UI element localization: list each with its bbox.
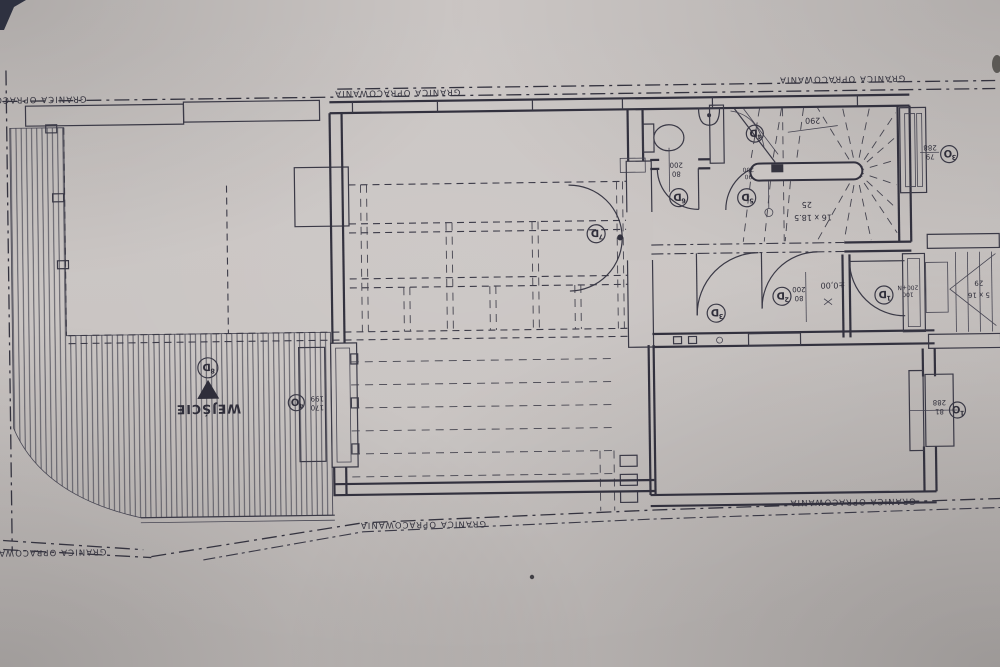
floor-plan-photo: GRANICA OPRACOWANIA GRANICA OPRACOWANIA … xyxy=(0,0,1000,667)
stair-going-dim: 25 xyxy=(802,200,812,209)
door-label-d2: D xyxy=(777,289,785,300)
door-label-d6-sub: 6 xyxy=(681,197,686,205)
svg-text:80: 80 xyxy=(794,294,803,302)
door-label-d7-sub: 7 xyxy=(599,233,604,241)
door-label-d8: D xyxy=(202,361,210,372)
deck-hatch xyxy=(10,124,333,519)
window-label-o4: O xyxy=(291,396,300,407)
window-label-o3-sub: 3 xyxy=(952,153,957,161)
overhead-structure-dashed xyxy=(348,181,628,332)
bottom-right-room: O 1 81 288 xyxy=(649,348,967,506)
toilet xyxy=(643,124,684,153)
window-o1-height: 288 xyxy=(933,398,946,406)
window-o1-width: 81 xyxy=(935,407,944,415)
masonry-pier xyxy=(294,167,349,227)
terrace-top-wall-2 xyxy=(183,100,319,122)
plan-sheet: GRANICA OPRACOWANIA GRANICA OPRACOWANIA … xyxy=(0,57,1000,563)
corner-mark xyxy=(0,0,26,30)
party-wall: D 7 xyxy=(568,109,655,348)
terrace-top-wall xyxy=(25,104,183,126)
boundary-label-top-left: GRANICA OPRACOWANIA xyxy=(0,93,87,105)
window-o4-height: 199 xyxy=(311,394,324,402)
terrace xyxy=(9,100,352,524)
door-label-d4: D xyxy=(749,127,757,138)
door-label-d6: D xyxy=(673,191,681,202)
door-label-d1: D xyxy=(879,288,887,299)
floor-plan-drawing: GRANICA OPRACOWANIA GRANICA OPRACOWANIA … xyxy=(0,0,1000,667)
door-label-d4-sub: 4 xyxy=(757,133,762,141)
svg-text:200: 200 xyxy=(792,285,805,293)
wc-wall-stub xyxy=(709,105,724,163)
boundary-label-bottom-right: GRANICA OPRACOWANIA xyxy=(789,496,915,508)
hall: D 3 D 2 80 200 ±0,00 xyxy=(651,241,934,347)
window-o4-width: 170 xyxy=(311,403,324,411)
svg-text:200: 200 xyxy=(742,166,754,173)
shaft-blocks xyxy=(620,455,638,502)
boundary-label-top-right: GRANICA OPRACOWANIA xyxy=(779,73,905,85)
stair-handrail xyxy=(750,162,862,180)
svg-text:80: 80 xyxy=(672,170,681,178)
window-o3: O 3 79 288 xyxy=(900,107,959,193)
door-label-d7: D xyxy=(591,227,599,238)
boundary-label-bottom-center: GRANICA OPRACOWANIA xyxy=(360,518,486,530)
door-label-d8-sub: 8 xyxy=(210,367,215,375)
door-label-d2-sub: 2 xyxy=(784,295,789,303)
window-label-o3: O xyxy=(944,147,953,158)
entrance-label: WEJŚCIE xyxy=(176,401,242,417)
svg-text:200: 200 xyxy=(670,161,683,169)
door-label-d1-sub: 1 xyxy=(886,294,891,302)
boundary-label-top-center: GRANICA OPRACOWANIA xyxy=(334,87,460,99)
exterior-stair-treads: 5 x 16 xyxy=(967,291,990,299)
door-label-d5-sub: 5 xyxy=(749,197,754,205)
window-o1: O 1 81 288 xyxy=(909,370,966,451)
middle-building xyxy=(329,95,914,515)
door-label-d3: D xyxy=(711,306,719,317)
door-d3: D 3 xyxy=(696,253,759,323)
exterior-wall-upper xyxy=(927,233,999,248)
door-d2: D 2 80 200 xyxy=(761,252,818,323)
stair-width-dim: 290 xyxy=(805,116,820,125)
boundary-label-bottom-left: GRANICA OPRACOWANIA xyxy=(0,546,106,558)
window-o3-width: 79 xyxy=(926,152,935,160)
door-d6-dimension: 80 200 xyxy=(669,148,683,192)
main-stair: D 4 90 200 290 25 16 x 18.5 xyxy=(731,106,912,244)
window-o3-height: 288 xyxy=(923,143,936,151)
window-label-o4-sub: 4 xyxy=(298,402,303,410)
stair-treads-dim: 16 x 18.5 xyxy=(794,213,832,222)
level-mark: ±0,00 xyxy=(821,280,846,304)
svg-text:±0,00: ±0,00 xyxy=(821,280,846,289)
paper-speck xyxy=(530,575,534,579)
window-label-o1: O xyxy=(952,403,961,414)
exterior-stair-rise: 29 xyxy=(974,279,983,287)
window-label-o1-sub: 1 xyxy=(959,409,964,417)
door-label-d3-sub: 3 xyxy=(719,312,724,320)
exterior-wall-lower xyxy=(928,333,1000,348)
edge-mark xyxy=(992,55,1000,73)
lower-room-joists-dashed xyxy=(351,359,615,514)
